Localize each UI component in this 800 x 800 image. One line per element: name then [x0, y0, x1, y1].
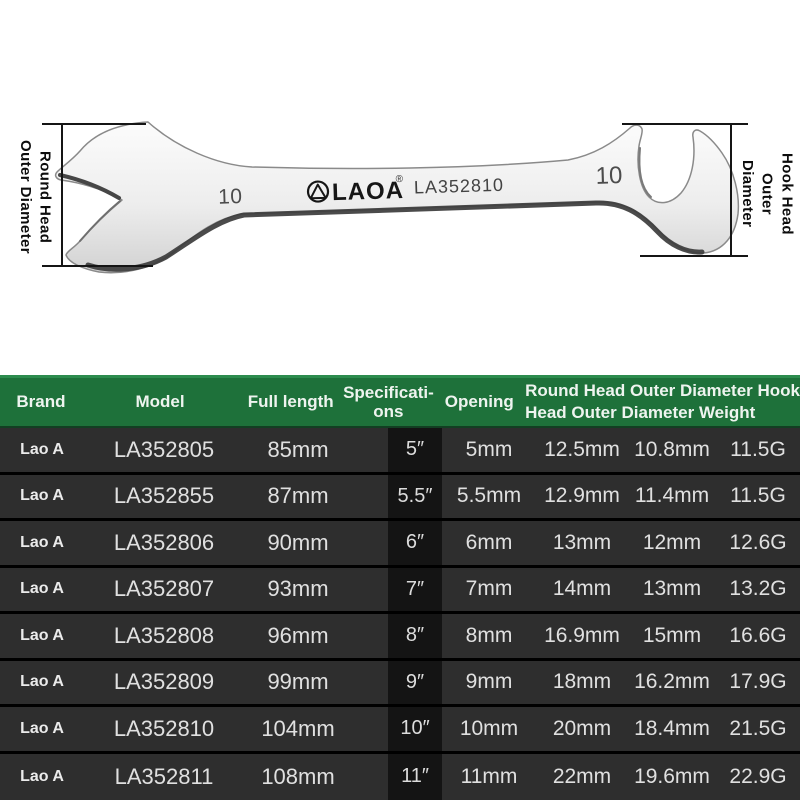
weight-cell: 13.2G — [716, 568, 800, 612]
model-cell: LA352808 — [84, 614, 244, 658]
brand-cell: Lao A — [0, 475, 84, 519]
hook-head-diameter-cell: 19.6mm — [628, 754, 716, 800]
table-row: Lao A LA352855 87mm 5.5″ 5.5mm 12.9mm 11… — [0, 475, 800, 522]
label-line: Round Head — [35, 128, 55, 266]
label-line: Diameter — [737, 132, 757, 256]
specification-cell: 8″ — [388, 614, 442, 658]
specification-cell: 6″ — [388, 521, 442, 565]
wrench-photo: 10 LAOA ® LA352810 10 — [0, 0, 800, 375]
table-row: Lao A LA352806 90mm 6″ 6mm 13mm 12mm 12.… — [0, 521, 800, 568]
round-head-outer-diameter-label: Round Head Outer Diameter — [15, 128, 55, 266]
brand-cell: Lao A — [0, 614, 84, 658]
col-header-model: Model — [82, 378, 238, 426]
full-length-cell: 85mm — [244, 428, 352, 472]
opening-cell: 6mm — [442, 521, 536, 565]
hook-head-diameter-cell: 11.4mm — [628, 475, 716, 519]
round-head-diameter-cell: 22mm — [536, 754, 628, 800]
col-header-brand: Brand — [0, 378, 82, 426]
label-line: Outer Diameter — [15, 128, 35, 266]
weight-cell: 12.6G — [716, 521, 800, 565]
brand-cell: Lao A — [0, 754, 84, 800]
opening-cell: 10mm — [442, 707, 536, 751]
product-image: 10 LAOA ® LA352810 10 Round Head Outer D… — [0, 0, 800, 375]
specification-cell: 5.5″ — [388, 475, 442, 519]
weight-cell: 16.6G — [716, 614, 800, 658]
model-cell: LA352811 — [84, 754, 244, 800]
specification-cell: 11″ — [388, 754, 442, 800]
model-cell: LA352806 — [84, 521, 244, 565]
full-length-cell: 104mm — [244, 707, 352, 751]
full-length-cell: 90mm — [244, 521, 352, 565]
full-length-cell: 93mm — [244, 568, 352, 612]
table-row: Lao A LA352810 104mm 10″ 10mm 20mm 18.4m… — [0, 707, 800, 754]
table-row: Lao A LA352811 108mm 11″ 11mm 22mm 19.6m… — [0, 754, 800, 800]
brand-cell: Lao A — [0, 661, 84, 705]
opening-cell: 11mm — [442, 754, 536, 800]
brand-cell: Lao A — [0, 521, 84, 565]
specification-cell: 9″ — [388, 661, 442, 705]
opening-cell: 5mm — [442, 428, 536, 472]
hook-head-diameter-cell: 13mm — [628, 568, 716, 612]
registered-mark: ® — [395, 174, 403, 185]
table-row: Lao A LA352808 96mm 8″ 8mm 16.9mm 15mm 1… — [0, 614, 800, 661]
left-size-marking: 10 — [218, 185, 243, 209]
full-length-cell: 108mm — [244, 754, 352, 800]
model-cell: LA352805 — [84, 428, 244, 472]
table-row: Lao A LA352807 93mm 7″ 7mm 14mm 13mm 13.… — [0, 568, 800, 615]
table-header-row: Brand Model Full length Specificati- ons… — [0, 375, 800, 428]
specification-cell: 10″ — [388, 707, 442, 751]
hook-head-diameter-cell: 15mm — [628, 614, 716, 658]
model-cell: LA352855 — [84, 475, 244, 519]
col-header-opening: Opening — [433, 378, 525, 426]
model-engraving: LA352810 — [414, 175, 505, 198]
weight-cell: 22.9G — [716, 754, 800, 800]
table-row: Lao A LA352809 99mm 9″ 9mm 18mm 16.2mm 1… — [0, 661, 800, 708]
specification-table: Brand Model Full length Specificati- ons… — [0, 375, 800, 800]
weight-cell: 11.5G — [716, 428, 800, 472]
brand-cell: Lao A — [0, 568, 84, 612]
table-row: Lao A LA352805 85mm 5″ 5mm 12.5mm 10.8mm… — [0, 428, 800, 475]
model-cell: LA352810 — [84, 707, 244, 751]
brand-engraving: LAOA — [332, 177, 405, 206]
full-length-cell: 99mm — [244, 661, 352, 705]
opening-cell: 5.5mm — [442, 475, 536, 519]
round-head-diameter-cell: 18mm — [536, 661, 628, 705]
model-cell: LA352809 — [84, 661, 244, 705]
opening-cell: 8mm — [442, 614, 536, 658]
hook-head-outer-diameter-label: Hook Head Outer Diameter — [737, 132, 796, 256]
weight-cell: 11.5G — [716, 475, 800, 519]
round-head-diameter-cell: 14mm — [536, 568, 628, 612]
model-cell: LA352807 — [84, 568, 244, 612]
round-head-diameter-cell: 13mm — [536, 521, 628, 565]
col-header-full-length: Full length — [238, 378, 343, 426]
specification-cell: 7″ — [388, 568, 442, 612]
brand-cell: Lao A — [0, 707, 84, 751]
col-header-diameters-weight: Round Head Outer Diameter Hook Head Oute… — [525, 378, 800, 426]
label-line: Hook Head — [777, 132, 797, 256]
label-line: Outer — [757, 132, 777, 256]
hook-head-diameter-cell: 10.8mm — [628, 428, 716, 472]
opening-cell: 9mm — [442, 661, 536, 705]
full-length-cell: 96mm — [244, 614, 352, 658]
round-head-diameter-cell: 16.9mm — [536, 614, 628, 658]
specification-cell: 5″ — [388, 428, 442, 472]
hook-head-diameter-cell: 16.2mm — [628, 661, 716, 705]
opening-cell: 7mm — [442, 568, 536, 612]
round-head-diameter-cell: 12.9mm — [536, 475, 628, 519]
right-size-marking: 10 — [595, 162, 623, 190]
round-head-diameter-cell: 12.5mm — [536, 428, 628, 472]
round-head-diameter-cell: 20mm — [536, 707, 628, 751]
brand-cell: Lao A — [0, 428, 84, 472]
hook-head-diameter-cell: 18.4mm — [628, 707, 716, 751]
col-header-specifications: Specificati- ons — [343, 378, 433, 426]
weight-cell: 17.9G — [716, 661, 800, 705]
table-body: Lao A LA352805 85mm 5″ 5mm 12.5mm 10.8mm… — [0, 428, 800, 800]
hook-head-diameter-cell: 12mm — [628, 521, 716, 565]
weight-cell: 21.5G — [716, 707, 800, 751]
full-length-cell: 87mm — [244, 475, 352, 519]
